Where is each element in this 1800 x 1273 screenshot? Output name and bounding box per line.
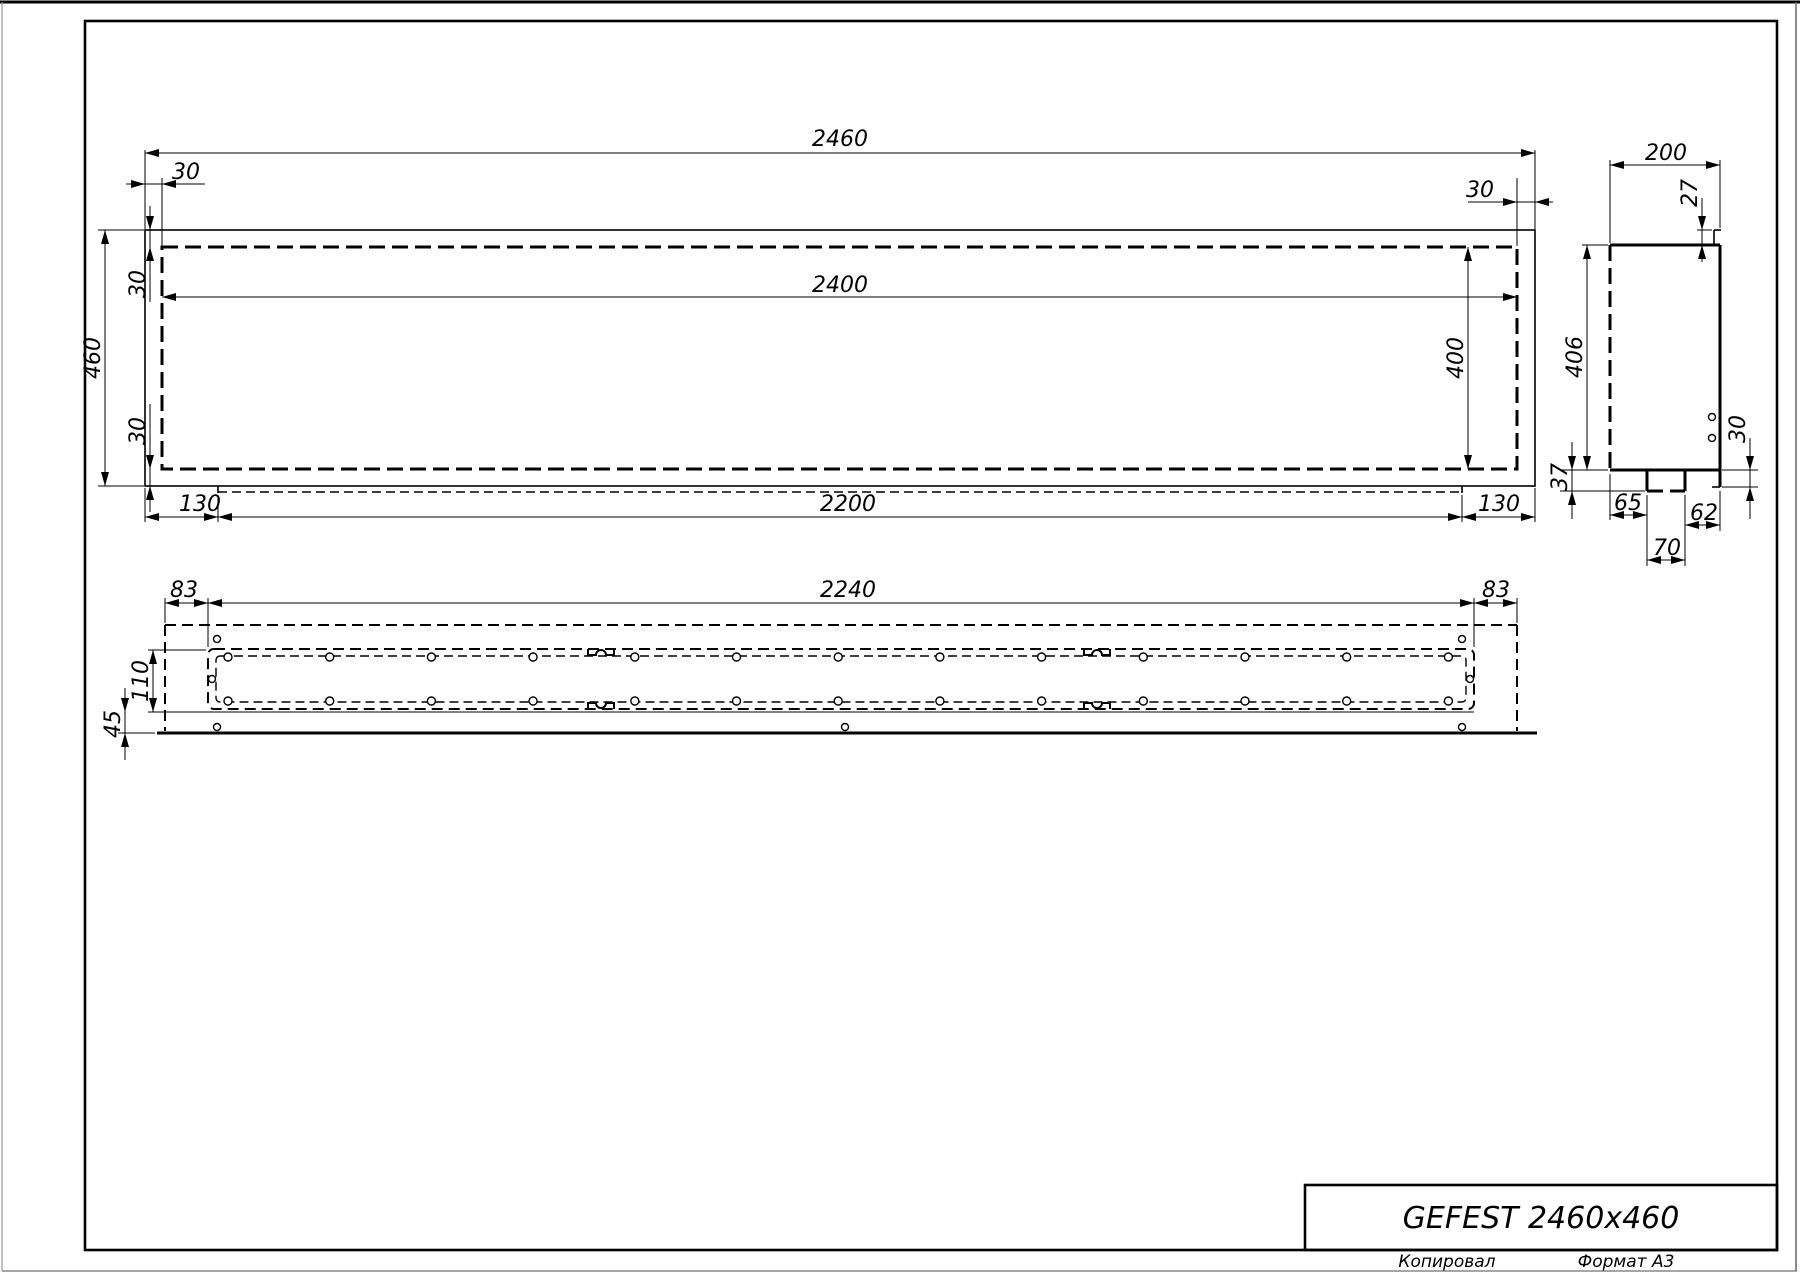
inner-frame (85, 21, 1777, 1250)
slot-hole (733, 697, 741, 705)
dim-side-top-flange: 27 (1678, 179, 1703, 207)
slot-hole (224, 697, 232, 705)
dim-bottom-slot-margin-right: 83 (1482, 578, 1510, 603)
slot-hole (326, 697, 334, 705)
dim-front-tray-margin-left: 130 (179, 492, 221, 517)
slot-hole (936, 697, 944, 705)
dim-front-total-width: 2460 (812, 127, 868, 152)
slot-hole (1444, 653, 1452, 661)
slot-hole (834, 697, 842, 705)
slot-hole (1343, 697, 1351, 705)
dim-side-notch-drop: 37 (1548, 463, 1573, 491)
slot-hole (1139, 697, 1147, 705)
dim-side-height: 406 (1563, 336, 1588, 378)
bottom-view-extension-lines (118, 598, 1517, 733)
slot-hole (733, 653, 741, 661)
bottom-view-labels: 83 2240 83 110 45 (101, 578, 1510, 738)
side-view-extension-lines (1560, 160, 1758, 566)
front-view-dimension-lines (105, 153, 1553, 517)
dim-side-foot-right: 62 (1690, 501, 1718, 526)
front-view-extension-lines (98, 150, 1535, 522)
slot-hole (834, 653, 842, 661)
side-mount-hole-lower (1709, 435, 1716, 442)
copied-by-label: Копировал (1398, 1252, 1495, 1272)
slot-hole (427, 697, 435, 705)
slot-hole (1038, 653, 1046, 661)
sheet-border (0, 2, 1800, 1271)
dim-bottom-slot-width: 110 (129, 660, 154, 702)
slot-hole (1241, 697, 1249, 705)
dim-front-left-inset-top: 30 (126, 270, 151, 298)
dim-side-hole-offset: 30 (1726, 415, 1751, 443)
dim-side-notch-width: 70 (1653, 536, 1681, 561)
format-label: Формат А3 (1578, 1252, 1675, 1272)
dim-front-left-inset-bottom: 30 (126, 417, 151, 445)
drawing-sheet: 2460 30 30 2400 460 30 30 400 130 2200 1… (0, 0, 1800, 1273)
slot-hole (1038, 697, 1046, 705)
bottom-view-outline (148, 625, 1537, 733)
slot-hole (631, 697, 639, 705)
slot-hole (1139, 653, 1147, 661)
dim-front-top-inset-left: 30 (172, 160, 200, 185)
slot-hole (1241, 653, 1249, 661)
dim-front-total-height: 460 (81, 337, 106, 379)
side-mount-hole-upper (1709, 414, 1716, 421)
slot-hole (1444, 697, 1452, 705)
front-view-outline (145, 230, 1535, 493)
dim-front-top-inset-right: 30 (1466, 178, 1494, 203)
dim-side-depth: 200 (1645, 141, 1687, 166)
slot-hole (326, 653, 334, 661)
slot-hole-rows (224, 653, 1452, 705)
slot-hole (936, 653, 944, 661)
slot-hole (427, 653, 435, 661)
slot-hole (631, 653, 639, 661)
dim-bottom-slot-margin-left: 83 (170, 578, 198, 603)
burner-slot-inner (216, 656, 1466, 702)
side-view-outline (1610, 230, 1721, 491)
dim-front-tray-length: 2200 (820, 492, 876, 517)
front-view-labels: 2460 30 30 2400 460 30 30 400 130 2200 1… (81, 127, 1520, 517)
dim-front-inner-width: 2400 (812, 273, 868, 298)
side-view-dimension-lines (1572, 165, 1750, 560)
title-block-title: GEFEST 2460x460 (1403, 1201, 1680, 1236)
dim-bottom-front-offset: 45 (101, 710, 126, 738)
technical-drawing: 2460 30 30 2400 460 30 30 400 130 2200 1… (0, 0, 1800, 1273)
slot-hole (1343, 653, 1351, 661)
slot-hole (529, 653, 537, 661)
slot-hole (224, 653, 232, 661)
title-block: GEFEST 2460x460 Копировал Формат А3 (1305, 1185, 1777, 1272)
dim-side-foot-left: 65 (1614, 491, 1642, 516)
dim-bottom-slot-length: 2240 (820, 578, 876, 603)
dim-front-inner-height: 400 (1444, 337, 1469, 379)
dim-front-tray-margin-right: 130 (1478, 492, 1520, 517)
slot-hole (529, 697, 537, 705)
bottom-view-dimension-lines (125, 603, 1517, 760)
